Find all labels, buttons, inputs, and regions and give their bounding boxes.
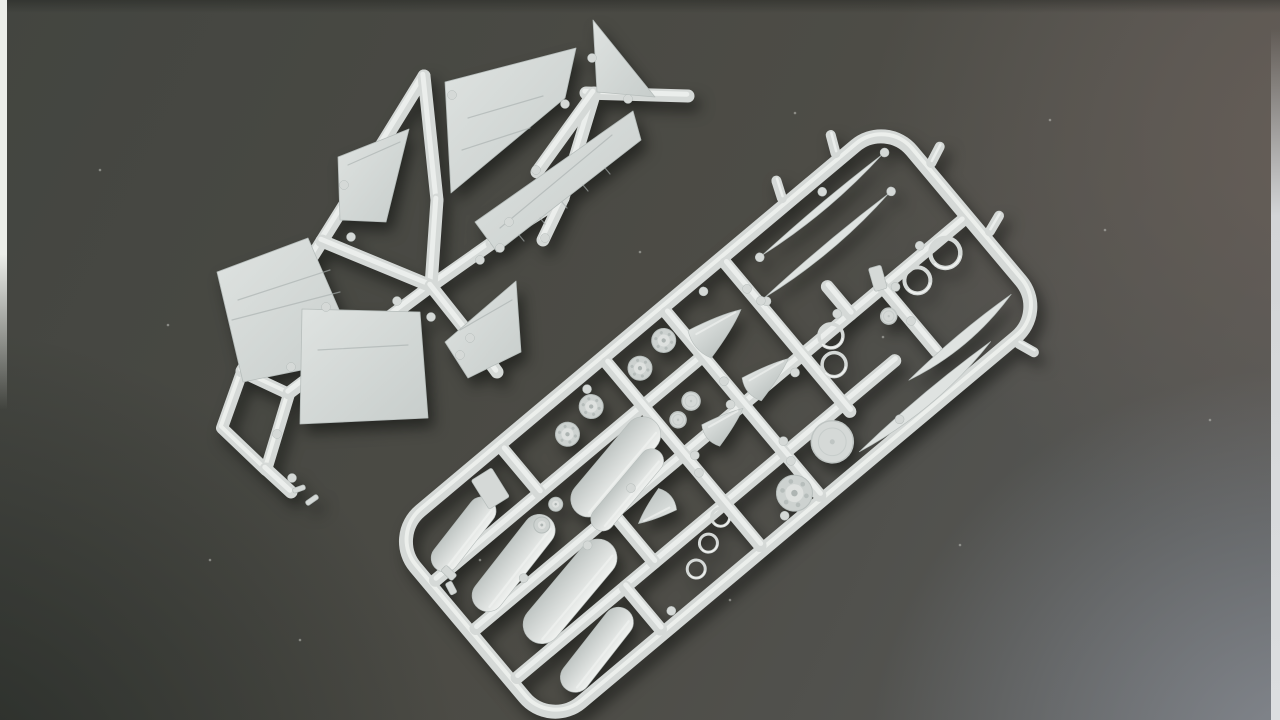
- dust-speck: [639, 251, 642, 254]
- runner-segment-highlight: [430, 284, 468, 332]
- gate-nub: [288, 474, 297, 483]
- gate-nub: [505, 218, 514, 227]
- panel-scribe-line: [605, 168, 610, 174]
- dust-speck: [299, 639, 302, 642]
- runner-segment-highlight: [504, 448, 540, 491]
- dust-speck: [479, 559, 482, 562]
- gate-nub: [448, 91, 457, 100]
- model-kit-photo: [0, 0, 1280, 720]
- blade-part: [857, 339, 996, 459]
- dust-speck: [167, 324, 170, 327]
- gate-nub: [581, 383, 594, 396]
- small-plate-part: [305, 494, 319, 506]
- runner-segment-highlight: [321, 239, 430, 284]
- parts-sprue-frame-group: [373, 83, 1082, 720]
- gate-nub: [322, 303, 331, 312]
- dust-speck: [1049, 119, 1052, 122]
- parts-sprue: [373, 83, 1082, 720]
- panel-scribe-line: [583, 185, 588, 191]
- gate-nub: [476, 256, 485, 265]
- small-plate-part: [868, 265, 887, 292]
- gate-nub: [624, 95, 633, 104]
- panel-scribe-line: [519, 235, 524, 241]
- gate-nub: [347, 233, 356, 242]
- dust-speck: [794, 112, 797, 115]
- gate-nub: [466, 334, 475, 343]
- gate-nub: [561, 100, 570, 109]
- gate-nub: [532, 166, 541, 175]
- photo-backdrop: [0, 0, 1280, 720]
- wing-lower-panel: [300, 309, 428, 424]
- gate-nub: [427, 313, 436, 322]
- dust-speck: [1104, 229, 1107, 232]
- dust-speck: [729, 599, 732, 602]
- gate-nub: [287, 363, 296, 372]
- gate-nub: [753, 251, 766, 264]
- dust-speck: [1209, 419, 1212, 422]
- gate-nub: [273, 430, 282, 439]
- gate-nub: [541, 234, 550, 243]
- gate-nub: [816, 185, 829, 198]
- gate-nub: [588, 54, 597, 63]
- dust-speck: [959, 544, 962, 547]
- gate-nub: [496, 244, 505, 253]
- dust-speck: [882, 336, 885, 339]
- small-plate-part: [445, 581, 457, 596]
- tail-fin-panel: [593, 20, 655, 97]
- small-plate-part: [292, 484, 306, 493]
- dust-speck: [559, 439, 562, 442]
- fin-half-panel: [445, 281, 521, 378]
- dust-speck: [209, 559, 212, 562]
- gate-nub: [393, 297, 402, 306]
- gate-nub: [697, 285, 710, 298]
- gate-nub: [456, 351, 465, 360]
- panel-scribe-line: [540, 218, 545, 224]
- gate-nub: [340, 181, 349, 190]
- dust-speck: [99, 169, 102, 172]
